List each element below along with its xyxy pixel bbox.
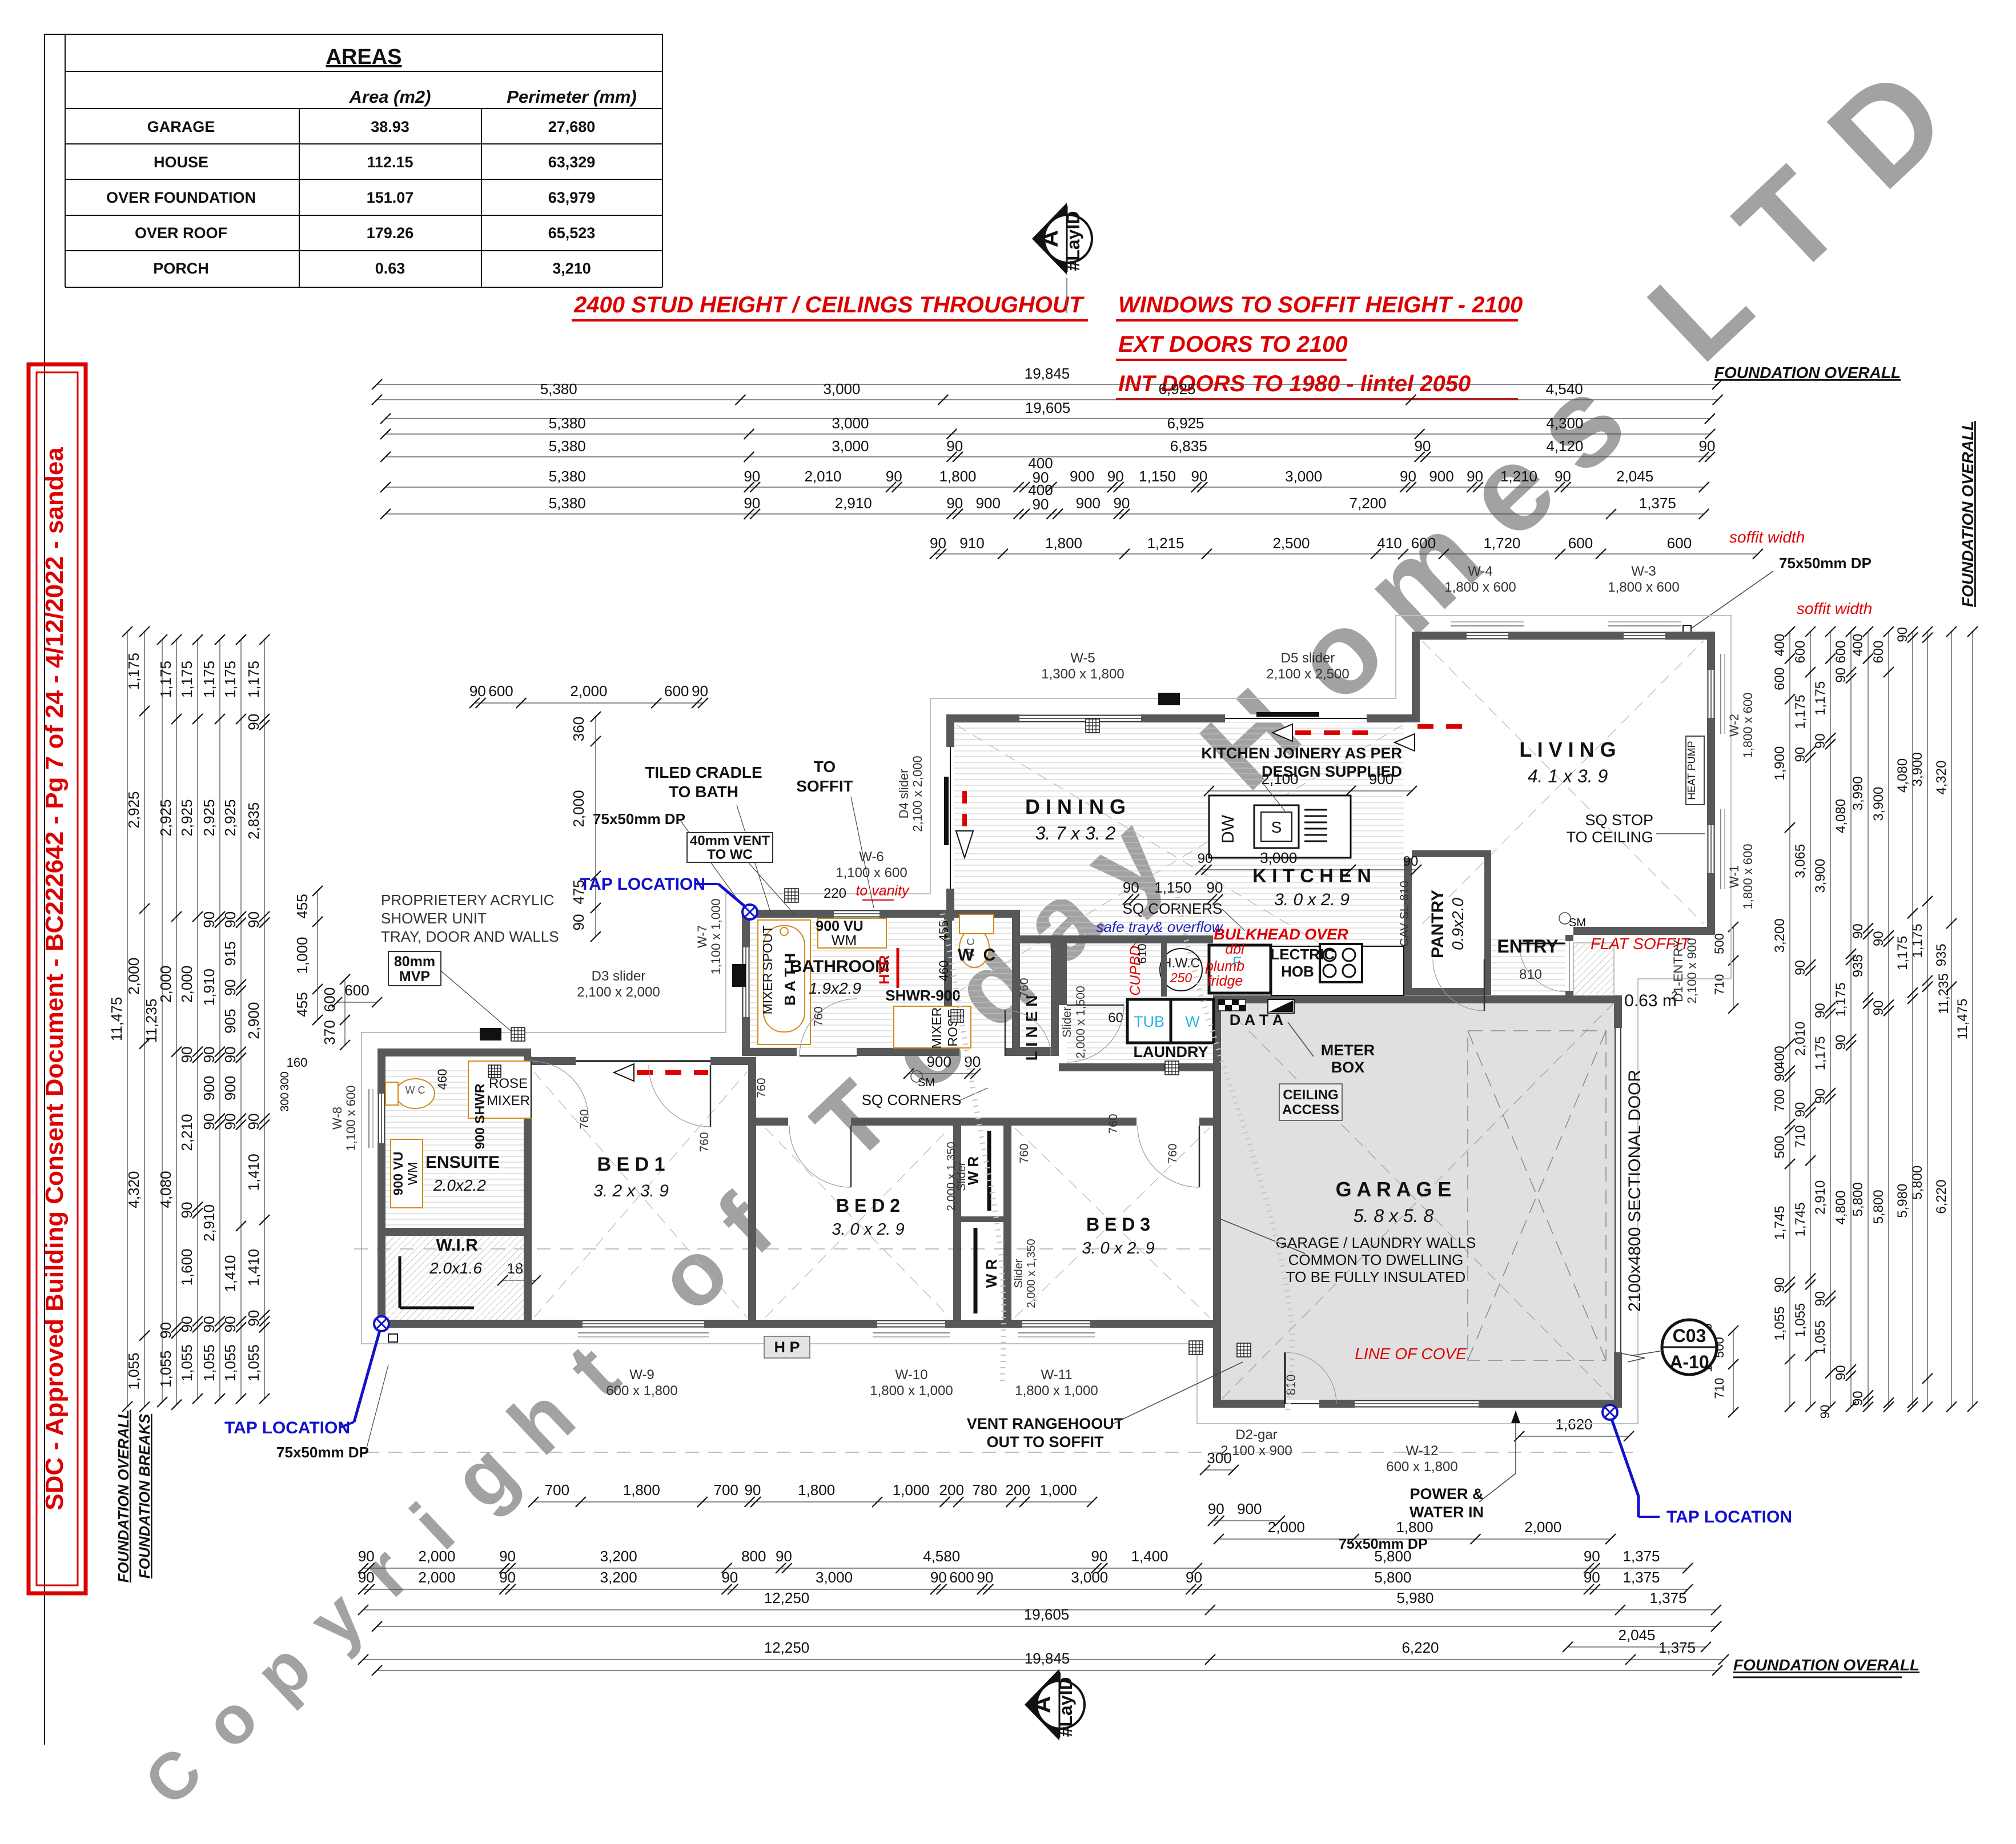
svg-text:SHOWER UNIT: SHOWER UNIT bbox=[381, 910, 487, 927]
svg-text:370: 370 bbox=[321, 1020, 338, 1044]
svg-text:460: 460 bbox=[937, 961, 951, 982]
svg-text:90: 90 bbox=[1584, 1548, 1600, 1565]
svg-text:2,925: 2,925 bbox=[125, 791, 142, 828]
svg-text:90: 90 bbox=[1033, 496, 1049, 513]
svg-text:1,100 x 600: 1,100 x 600 bbox=[344, 1086, 358, 1151]
svg-text:90: 90 bbox=[1208, 1500, 1224, 1517]
svg-text:2,000: 2,000 bbox=[1268, 1518, 1305, 1536]
svg-text:90: 90 bbox=[692, 682, 708, 700]
svg-text:1,800: 1,800 bbox=[1396, 1518, 1433, 1536]
svg-text:90: 90 bbox=[1123, 879, 1139, 896]
svg-text:1,175: 1,175 bbox=[178, 661, 195, 698]
svg-text:W-10: W-10 bbox=[895, 1367, 928, 1383]
svg-text:1,400: 1,400 bbox=[1131, 1548, 1168, 1565]
svg-text:300: 300 bbox=[279, 1092, 291, 1111]
svg-text:W-4: W-4 bbox=[1468, 564, 1493, 579]
svg-text:90: 90 bbox=[245, 1114, 262, 1130]
svg-text:W R: W R bbox=[983, 1259, 1000, 1288]
svg-text:FOUNDATION OVERALL: FOUNDATION OVERALL bbox=[1714, 364, 1901, 381]
svg-text:1,150: 1,150 bbox=[1139, 468, 1176, 485]
svg-text:4,800: 4,800 bbox=[1833, 1190, 1849, 1224]
svg-text:W-9: W-9 bbox=[629, 1367, 654, 1383]
svg-text:90: 90 bbox=[964, 1053, 981, 1070]
svg-text:1,055: 1,055 bbox=[200, 1344, 218, 1381]
svg-text:90: 90 bbox=[222, 911, 239, 928]
svg-text:DW: DW bbox=[1219, 814, 1238, 843]
svg-text:90: 90 bbox=[744, 495, 760, 512]
svg-text:FOUNDATION OVERALL: FOUNDATION OVERALL bbox=[115, 1410, 132, 1583]
svg-text:500: 500 bbox=[1772, 1136, 1788, 1159]
svg-text:TAP LOCATION: TAP LOCATION bbox=[580, 875, 705, 894]
svg-text:5,800: 5,800 bbox=[1850, 1182, 1866, 1216]
svg-text:760: 760 bbox=[1166, 1143, 1179, 1163]
svg-text:6,925: 6,925 bbox=[1167, 415, 1204, 432]
svg-text:0.9x2.0: 0.9x2.0 bbox=[1449, 898, 1467, 950]
svg-text:6,220: 6,220 bbox=[1934, 1180, 1949, 1214]
svg-text:900: 900 bbox=[1070, 468, 1094, 485]
svg-text:700: 700 bbox=[714, 1481, 738, 1498]
svg-text:Perimeter (mm): Perimeter (mm) bbox=[507, 87, 636, 107]
svg-text:90: 90 bbox=[1833, 668, 1849, 683]
svg-text:90: 90 bbox=[1186, 1569, 1202, 1586]
svg-text:760: 760 bbox=[698, 1132, 711, 1152]
svg-text:plumb: plumb bbox=[1205, 958, 1244, 974]
svg-text:SQ CORNERS: SQ CORNERS bbox=[1123, 900, 1223, 917]
svg-text:ENTRY: ENTRY bbox=[1497, 936, 1558, 957]
svg-text:1,175: 1,175 bbox=[1895, 936, 1910, 970]
svg-text:63,979: 63,979 bbox=[548, 189, 596, 206]
svg-text:90: 90 bbox=[222, 1114, 239, 1130]
svg-text:2,910: 2,910 bbox=[200, 1204, 218, 1242]
svg-text:CAV SL-810: CAV SL-810 bbox=[1398, 881, 1411, 946]
svg-text:710: 710 bbox=[1712, 974, 1726, 995]
svg-text:COMMON TO DWELLING: COMMON TO DWELLING bbox=[1288, 1251, 1464, 1268]
svg-text:PROPRIETERY ACRYLIC: PROPRIETERY ACRYLIC bbox=[381, 891, 554, 909]
svg-text:90: 90 bbox=[1813, 733, 1828, 749]
svg-text:90: 90 bbox=[570, 914, 587, 931]
svg-text:900: 900 bbox=[200, 1076, 218, 1100]
svg-text:2,000: 2,000 bbox=[570, 790, 587, 827]
svg-text:WINDOWS TO SOFFIT HEIGHT - 210: WINDOWS TO SOFFIT HEIGHT - 2100 bbox=[1118, 292, 1523, 318]
svg-text:400: 400 bbox=[1850, 634, 1866, 657]
svg-text:760: 760 bbox=[812, 1006, 825, 1026]
svg-text:4,320: 4,320 bbox=[125, 1171, 142, 1208]
svg-text:600: 600 bbox=[344, 982, 369, 999]
svg-text:90: 90 bbox=[222, 1316, 239, 1332]
svg-text:90: 90 bbox=[1813, 1088, 1828, 1104]
svg-text:TRAY, DOOR AND WALLS: TRAY, DOOR AND WALLS bbox=[381, 928, 559, 945]
svg-text:1,600: 1,600 bbox=[178, 1248, 195, 1285]
svg-text:KITCHEN JOINERY AS PER: KITCHEN JOINERY AS PER bbox=[1201, 745, 1402, 762]
svg-text:3,900: 3,900 bbox=[1871, 787, 1886, 821]
svg-text:2,925: 2,925 bbox=[200, 799, 218, 836]
svg-text:1,215: 1,215 bbox=[1147, 535, 1184, 552]
svg-text:75x50mm DP: 75x50mm DP bbox=[276, 1444, 369, 1461]
svg-text:2,925: 2,925 bbox=[157, 799, 174, 836]
svg-text:905: 905 bbox=[222, 1009, 239, 1033]
svg-text:2,000 x 1,350: 2,000 x 1,350 bbox=[1025, 1239, 1038, 1308]
svg-text:90: 90 bbox=[1191, 468, 1207, 485]
svg-text:1,375: 1,375 bbox=[1623, 1548, 1660, 1565]
svg-text:1,900: 1,900 bbox=[1772, 746, 1788, 781]
svg-text:BULKHEAD OVER: BULKHEAD OVER bbox=[1214, 926, 1348, 943]
svg-text:1,175: 1,175 bbox=[1793, 694, 1808, 729]
svg-text:B E D 1: B E D 1 bbox=[597, 1154, 665, 1175]
svg-text:S: S bbox=[1271, 818, 1282, 836]
svg-text:Slider: Slider bbox=[1013, 1259, 1025, 1288]
svg-text:90: 90 bbox=[977, 1569, 993, 1586]
svg-text:700: 700 bbox=[545, 1481, 569, 1498]
svg-text:2,000: 2,000 bbox=[1524, 1518, 1561, 1536]
svg-text:1,800 x 600: 1,800 x 600 bbox=[1741, 844, 1755, 910]
svg-text:H.W.C: H.W.C bbox=[1162, 955, 1200, 970]
svg-text:1,000: 1,000 bbox=[893, 1481, 930, 1498]
svg-text:90: 90 bbox=[1467, 468, 1483, 485]
svg-text:2,045: 2,045 bbox=[1616, 468, 1653, 485]
svg-text:1,800: 1,800 bbox=[798, 1481, 835, 1498]
svg-text:MIXER: MIXER bbox=[929, 1007, 944, 1049]
svg-text:Area (m2): Area (m2) bbox=[349, 87, 431, 107]
svg-text:90: 90 bbox=[499, 1569, 516, 1586]
svg-text:1,055: 1,055 bbox=[1813, 1320, 1828, 1355]
svg-text:250: 250 bbox=[1170, 970, 1192, 985]
svg-text:1,800: 1,800 bbox=[1045, 535, 1082, 552]
svg-text:W-11: W-11 bbox=[1041, 1367, 1072, 1383]
svg-text:H P: H P bbox=[774, 1339, 800, 1356]
svg-text:2,000: 2,000 bbox=[418, 1569, 455, 1586]
svg-text:PANTRY: PANTRY bbox=[1428, 890, 1447, 958]
svg-text:19,605: 19,605 bbox=[1024, 1606, 1070, 1623]
svg-text:1,175: 1,175 bbox=[1813, 681, 1828, 716]
svg-text:W-7: W-7 bbox=[695, 925, 709, 948]
svg-text:PORCH: PORCH bbox=[153, 260, 209, 277]
svg-text:3,000: 3,000 bbox=[832, 415, 869, 432]
svg-text:760: 760 bbox=[1018, 1143, 1031, 1163]
svg-text:2,910: 2,910 bbox=[835, 495, 872, 512]
svg-text:2,000: 2,000 bbox=[178, 966, 195, 1003]
svg-text:6,835: 6,835 bbox=[1170, 437, 1207, 455]
svg-text:TO BATH: TO BATH bbox=[669, 783, 738, 801]
svg-text:ROSE: ROSE bbox=[489, 1076, 528, 1091]
svg-text:11,475: 11,475 bbox=[1955, 999, 1970, 1040]
svg-text:1,055: 1,055 bbox=[1793, 1303, 1808, 1337]
svg-text:fridge: fridge bbox=[1207, 973, 1243, 989]
svg-text:75x50mm DP: 75x50mm DP bbox=[1779, 555, 1872, 572]
svg-text:3,200: 3,200 bbox=[600, 1548, 637, 1565]
svg-text:L I V I N G: L I V I N G bbox=[1519, 738, 1616, 761]
svg-text:90: 90 bbox=[245, 1310, 262, 1327]
svg-text:2,000 x 1,350: 2,000 x 1,350 bbox=[945, 1142, 958, 1211]
svg-text:600: 600 bbox=[488, 682, 513, 700]
svg-text:D I N I N G: D I N I N G bbox=[1025, 795, 1126, 818]
svg-text:2,100 x 2,500: 2,100 x 2,500 bbox=[1266, 666, 1349, 682]
svg-text:2,000: 2,000 bbox=[157, 966, 174, 1003]
svg-text:900: 900 bbox=[1237, 1500, 1262, 1517]
svg-text:90: 90 bbox=[721, 1569, 738, 1586]
svg-text:SOFFIT: SOFFIT bbox=[796, 777, 853, 795]
svg-text:TO WC: TO WC bbox=[707, 847, 753, 862]
svg-text:600: 600 bbox=[1667, 535, 1692, 552]
svg-text:90: 90 bbox=[886, 468, 902, 485]
svg-text:W C: W C bbox=[405, 1084, 425, 1096]
svg-text:80mm: 80mm bbox=[394, 954, 435, 970]
svg-text:1,375: 1,375 bbox=[1649, 1589, 1686, 1606]
svg-text:2.0x2.2: 2.0x2.2 bbox=[433, 1176, 486, 1194]
svg-text:90: 90 bbox=[358, 1548, 375, 1565]
svg-text:Slider: Slider bbox=[1061, 1007, 1074, 1038]
svg-text:W-1: W-1 bbox=[1727, 865, 1741, 888]
svg-text:soffit width: soffit width bbox=[1797, 600, 1872, 617]
svg-text:3. 7 x 3. 2: 3. 7 x 3. 2 bbox=[1035, 823, 1116, 843]
svg-text:2,925: 2,925 bbox=[178, 799, 195, 836]
svg-text:SHWR-900: SHWR-900 bbox=[885, 987, 960, 1004]
svg-text:2,100 x 2,000: 2,100 x 2,000 bbox=[577, 985, 660, 1000]
svg-text:2,900: 2,900 bbox=[245, 1002, 262, 1039]
svg-text:2,500: 2,500 bbox=[1272, 535, 1310, 552]
svg-text:1,910: 1,910 bbox=[200, 969, 218, 1006]
svg-text:2,010: 2,010 bbox=[1793, 1022, 1808, 1056]
svg-text:11,235: 11,235 bbox=[143, 999, 160, 1043]
svg-text:151.07: 151.07 bbox=[367, 189, 414, 206]
svg-text:90: 90 bbox=[178, 1046, 195, 1063]
svg-text:710: 710 bbox=[1712, 1378, 1726, 1399]
svg-text:6,925: 6,925 bbox=[1158, 380, 1195, 397]
svg-text:600: 600 bbox=[1568, 535, 1593, 552]
svg-text:5,980: 5,980 bbox=[1396, 1589, 1433, 1606]
svg-text:FOUNDATION OVERALL: FOUNDATION OVERALL bbox=[1959, 421, 1977, 607]
svg-text:90: 90 bbox=[1198, 851, 1213, 866]
svg-text:2,100 x 900: 2,100 x 900 bbox=[1220, 1443, 1292, 1459]
svg-text:90: 90 bbox=[222, 979, 239, 996]
svg-text:1,175: 1,175 bbox=[1813, 1036, 1828, 1070]
svg-text:FOUNDATION OVERALL: FOUNDATION OVERALL bbox=[1733, 1656, 1919, 1674]
svg-text:900: 900 bbox=[1429, 468, 1453, 485]
svg-text:5,380: 5,380 bbox=[549, 468, 586, 485]
svg-text:A: A bbox=[1036, 230, 1063, 247]
svg-text:760: 760 bbox=[755, 1078, 768, 1098]
svg-text:12,250: 12,250 bbox=[764, 1589, 810, 1606]
svg-text:90: 90 bbox=[200, 1046, 218, 1063]
svg-text:1,150: 1,150 bbox=[1154, 879, 1191, 896]
svg-text:3,210: 3,210 bbox=[552, 260, 591, 277]
svg-text:27,680: 27,680 bbox=[548, 118, 596, 135]
svg-text:90: 90 bbox=[1555, 468, 1571, 485]
svg-text:760: 760 bbox=[1107, 1114, 1120, 1134]
svg-text:1,745: 1,745 bbox=[1793, 1202, 1808, 1236]
svg-text:900: 900 bbox=[976, 495, 1001, 512]
svg-text:G A R A G E: G A R A G E bbox=[1336, 1178, 1452, 1201]
svg-text:90: 90 bbox=[1793, 960, 1808, 975]
svg-text:3. 0 x 2. 9: 3. 0 x 2. 9 bbox=[1274, 890, 1350, 909]
svg-text:TILED CRADLE: TILED CRADLE bbox=[645, 764, 762, 781]
svg-text:2,835: 2,835 bbox=[245, 802, 262, 839]
svg-text:EXT DOORS TO 2100: EXT DOORS TO 2100 bbox=[1118, 332, 1348, 357]
svg-text:915: 915 bbox=[222, 941, 239, 966]
svg-text:90: 90 bbox=[1584, 1569, 1600, 1586]
svg-text:SQ CORNERS: SQ CORNERS bbox=[862, 1091, 962, 1108]
svg-text:600: 600 bbox=[321, 987, 338, 1012]
svg-text:BOX: BOX bbox=[1331, 1059, 1365, 1076]
svg-text:90: 90 bbox=[1113, 495, 1130, 512]
svg-text:500: 500 bbox=[1712, 933, 1726, 954]
svg-text:600: 600 bbox=[1871, 640, 1886, 663]
svg-text:760: 760 bbox=[1018, 978, 1031, 998]
svg-text:90: 90 bbox=[930, 1569, 947, 1586]
svg-text:2400 STUD HEIGHT / CEILINGS TH: 2400 STUD HEIGHT / CEILINGS THROUGHOUT bbox=[573, 292, 1085, 318]
svg-text:D3 slider: D3 slider bbox=[592, 969, 646, 984]
svg-text:90: 90 bbox=[946, 437, 963, 455]
svg-text:OUT TO SOFFIT: OUT TO SOFFIT bbox=[987, 1433, 1104, 1451]
svg-text:1,800 x 600: 1,800 x 600 bbox=[1608, 580, 1679, 595]
svg-text:160: 160 bbox=[287, 1055, 308, 1070]
svg-text:90: 90 bbox=[776, 1548, 792, 1565]
svg-text:90: 90 bbox=[178, 1316, 195, 1332]
svg-text:600: 600 bbox=[1772, 668, 1788, 690]
svg-text:2,045: 2,045 bbox=[1618, 1626, 1655, 1644]
svg-text:W-2: W-2 bbox=[1727, 714, 1741, 737]
svg-text:1,100 x 600: 1,100 x 600 bbox=[836, 865, 907, 881]
svg-text:90: 90 bbox=[1833, 1365, 1849, 1380]
svg-text:DESIGN SUPPLIED: DESIGN SUPPLIED bbox=[1262, 763, 1402, 780]
svg-text:400: 400 bbox=[1772, 1046, 1788, 1068]
svg-text:360: 360 bbox=[570, 717, 587, 741]
svg-text:5,800: 5,800 bbox=[1871, 1190, 1886, 1224]
svg-text:90: 90 bbox=[245, 911, 262, 928]
svg-text:D5 slider: D5 slider bbox=[1281, 650, 1335, 666]
svg-text:4,080: 4,080 bbox=[1895, 758, 1910, 793]
svg-text:200: 200 bbox=[1006, 1481, 1030, 1498]
svg-text:1,175: 1,175 bbox=[1910, 923, 1925, 958]
svg-text:90: 90 bbox=[1207, 879, 1223, 896]
svg-text:0.63 m: 0.63 m bbox=[1624, 991, 1677, 1010]
svg-text:5,980: 5,980 bbox=[1895, 1184, 1910, 1218]
svg-text:1,210: 1,210 bbox=[1500, 468, 1537, 485]
svg-text:4,080: 4,080 bbox=[1833, 799, 1849, 833]
svg-text:OVER ROOF: OVER ROOF bbox=[135, 224, 227, 242]
svg-text:3,000: 3,000 bbox=[1285, 468, 1322, 485]
svg-text:610: 610 bbox=[1136, 943, 1149, 963]
svg-text:1,175: 1,175 bbox=[1833, 982, 1849, 1017]
svg-text:5,380: 5,380 bbox=[549, 415, 586, 432]
svg-text:4,540: 4,540 bbox=[1546, 380, 1583, 397]
svg-text:1,300 x 1,800: 1,300 x 1,800 bbox=[1041, 666, 1124, 682]
svg-text:75x50mm DP: 75x50mm DP bbox=[593, 810, 685, 827]
svg-text:W-12: W-12 bbox=[1406, 1443, 1439, 1459]
svg-text:5,380: 5,380 bbox=[549, 495, 586, 512]
svg-text:90: 90 bbox=[1793, 1102, 1808, 1118]
svg-text:3,000: 3,000 bbox=[832, 437, 869, 455]
svg-text:W: W bbox=[1185, 1013, 1200, 1030]
svg-text:3,000: 3,000 bbox=[1071, 1569, 1108, 1586]
svg-text:90: 90 bbox=[1698, 437, 1715, 455]
svg-text:780: 780 bbox=[973, 1481, 997, 1498]
svg-text:90: 90 bbox=[1813, 1291, 1828, 1307]
svg-text:1,175: 1,175 bbox=[222, 661, 239, 698]
svg-text:90: 90 bbox=[1813, 1003, 1828, 1018]
svg-text:4. 1 x 3. 9: 4. 1 x 3. 9 bbox=[1528, 766, 1608, 786]
svg-text:D4 slider: D4 slider bbox=[897, 769, 911, 819]
svg-text:179.26: 179.26 bbox=[367, 224, 414, 242]
svg-text:W-8: W-8 bbox=[330, 1107, 344, 1130]
svg-text:90: 90 bbox=[1403, 854, 1419, 869]
svg-text:90: 90 bbox=[930, 535, 946, 552]
svg-text:soffit width: soffit width bbox=[1729, 528, 1805, 546]
svg-text:BATHROOM: BATHROOM bbox=[790, 957, 889, 976]
svg-text:HEAT PUMP: HEAT PUMP bbox=[1686, 741, 1697, 800]
svg-text:90: 90 bbox=[744, 468, 760, 485]
svg-text:90: 90 bbox=[1107, 468, 1124, 485]
svg-text:410: 410 bbox=[1377, 535, 1401, 552]
svg-text:5,800: 5,800 bbox=[1910, 1166, 1925, 1200]
svg-text:200: 200 bbox=[939, 1481, 964, 1498]
svg-text:760: 760 bbox=[578, 1109, 591, 1129]
svg-text:1,000: 1,000 bbox=[1040, 1481, 1077, 1498]
svg-text:90: 90 bbox=[157, 1322, 174, 1339]
svg-text:90: 90 bbox=[1833, 1035, 1849, 1050]
svg-text:WM: WM bbox=[832, 933, 857, 949]
svg-text:3,900: 3,900 bbox=[1813, 859, 1828, 893]
svg-text:4,120: 4,120 bbox=[1546, 437, 1583, 455]
svg-text:600: 600 bbox=[664, 682, 689, 700]
svg-text:7,200: 7,200 bbox=[1350, 495, 1387, 512]
svg-text:D A T A: D A T A bbox=[1230, 1011, 1284, 1029]
svg-text:90: 90 bbox=[1850, 1391, 1866, 1406]
svg-text:METER: METER bbox=[1321, 1042, 1375, 1059]
svg-text:A: A bbox=[1029, 1696, 1055, 1713]
svg-text:3,065: 3,065 bbox=[1793, 844, 1808, 878]
svg-text:90: 90 bbox=[1793, 747, 1808, 762]
svg-text:TO: TO bbox=[814, 758, 836, 776]
svg-text:TAP LOCATION: TAP LOCATION bbox=[1666, 1508, 1792, 1526]
svg-text:OVER FOUNDATION: OVER FOUNDATION bbox=[106, 189, 256, 206]
svg-text:WATER IN: WATER IN bbox=[1409, 1504, 1484, 1521]
svg-text:1,000: 1,000 bbox=[294, 937, 311, 974]
svg-text:TAP LOCATION: TAP LOCATION bbox=[224, 1419, 350, 1437]
svg-text:B E D 3: B E D 3 bbox=[1086, 1214, 1150, 1235]
svg-text:90: 90 bbox=[744, 1481, 761, 1498]
svg-text:1,055: 1,055 bbox=[157, 1351, 174, 1388]
svg-text:0.63: 0.63 bbox=[375, 260, 405, 277]
svg-text:19,845: 19,845 bbox=[1025, 1650, 1070, 1667]
svg-text:40mm VENT: 40mm VENT bbox=[690, 833, 770, 849]
svg-text:935: 935 bbox=[1850, 954, 1866, 977]
svg-text:4,580: 4,580 bbox=[923, 1548, 960, 1565]
svg-text:65,523: 65,523 bbox=[548, 224, 596, 242]
svg-text:90: 90 bbox=[1818, 1405, 1832, 1419]
svg-text:90: 90 bbox=[469, 682, 486, 700]
svg-text:90: 90 bbox=[245, 714, 262, 730]
svg-text:A-10: A-10 bbox=[1669, 1352, 1709, 1372]
svg-text:1,175: 1,175 bbox=[200, 661, 218, 698]
svg-text:1.9x2.9: 1.9x2.9 bbox=[809, 979, 861, 997]
svg-text:400: 400 bbox=[1772, 634, 1788, 657]
svg-text:90: 90 bbox=[1871, 931, 1886, 946]
svg-text:W-3: W-3 bbox=[1631, 564, 1656, 579]
svg-text:90: 90 bbox=[1895, 627, 1910, 642]
svg-text:MIXER: MIXER bbox=[760, 973, 775, 1015]
svg-text:2,000: 2,000 bbox=[125, 958, 142, 995]
svg-text:5,800: 5,800 bbox=[1374, 1548, 1411, 1565]
svg-text:SM: SM bbox=[1569, 917, 1586, 929]
svg-text:4,320: 4,320 bbox=[1934, 761, 1949, 795]
svg-text:1,100 x 1,000: 1,100 x 1,000 bbox=[709, 898, 723, 974]
svg-text:600 x 1,800: 600 x 1,800 bbox=[606, 1383, 677, 1399]
svg-text:90: 90 bbox=[200, 1316, 218, 1332]
svg-text:1,410: 1,410 bbox=[245, 1249, 262, 1286]
svg-text:2,000: 2,000 bbox=[570, 682, 607, 700]
svg-text:5,800: 5,800 bbox=[1374, 1569, 1411, 1586]
svg-text:4,300: 4,300 bbox=[1546, 415, 1583, 432]
